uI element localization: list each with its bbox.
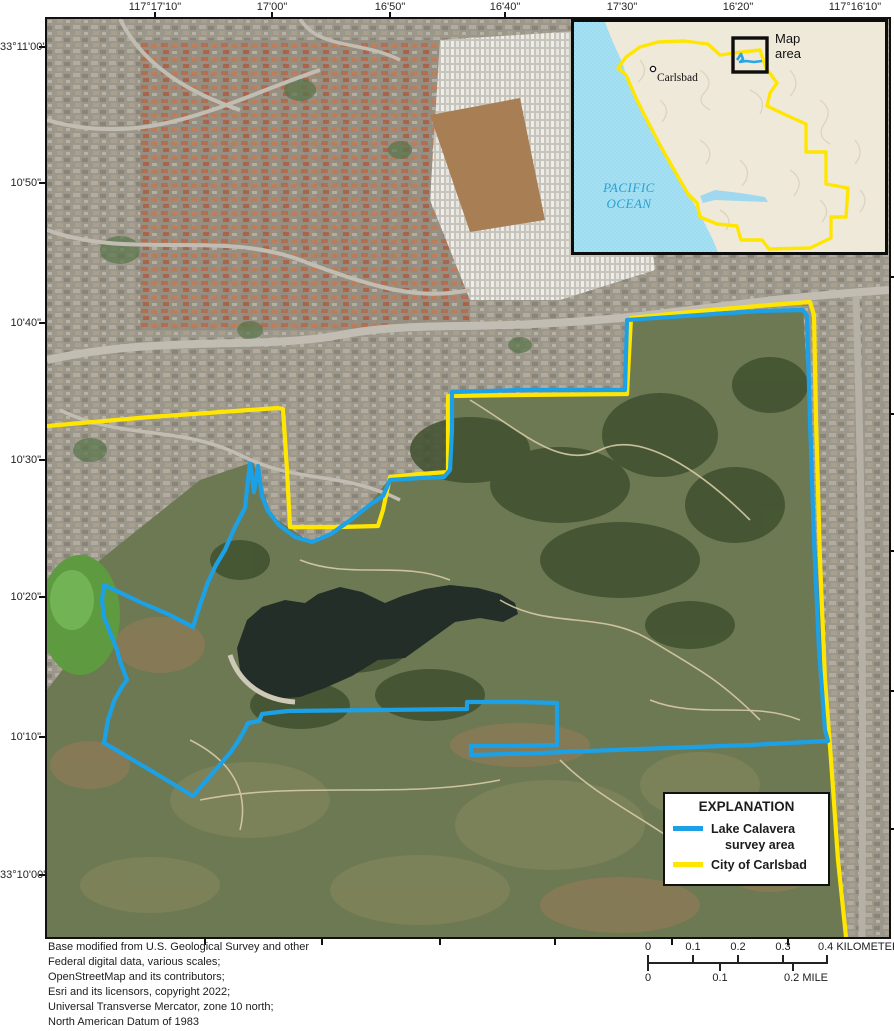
graticule-tick	[321, 939, 323, 945]
scale-km-end-label: 0.4 KILOMETER	[818, 941, 894, 953]
latitude-label: 10'20"	[0, 591, 41, 603]
carlsbad-town-marker	[650, 66, 655, 71]
graticule-tick	[889, 413, 894, 415]
scale-tick	[647, 955, 649, 963]
credit-line: OpenStreetMap and its contributors;	[48, 970, 309, 985]
latitude-label: 33°10'00"	[0, 869, 41, 881]
base-credit-note: Base modified from U.S. Geological Surve…	[48, 940, 309, 1030]
latitude-label: 33°11'00"	[0, 41, 41, 53]
graticule-tick	[889, 550, 894, 552]
scale-km-label: 0.2	[730, 941, 745, 953]
scale-mile-label: 0.1	[712, 972, 727, 984]
scale-mile-label: 0	[645, 972, 651, 984]
scale-tick	[737, 955, 739, 963]
scale-tick	[826, 955, 828, 963]
graticule-tick	[671, 939, 673, 945]
legend-item-city-boundary: City of Carlsbad	[665, 857, 828, 877]
carlsbad-label: Carlsbad	[657, 72, 698, 84]
scale-mile-end-label: 0.2 MILE	[784, 972, 828, 984]
longitude-label: 17'30"	[607, 1, 637, 13]
location-inset-map: Map area Carlsbad PACIFIC OCEAN	[571, 19, 888, 255]
graticule-tick	[889, 690, 894, 692]
scale-km-label: 0.1	[685, 941, 700, 953]
longitude-label: 16'20"	[723, 1, 753, 13]
legend-item-label: City of Carlsbad	[711, 857, 822, 873]
legend-item-label: Lake Calavera survey area	[711, 821, 822, 853]
scale-tick	[792, 963, 794, 971]
map-area-label: Map area	[775, 31, 813, 61]
latitude-label: 10'40"	[0, 317, 41, 329]
inset-map-graphics	[574, 22, 885, 252]
scale-tick	[782, 955, 784, 963]
graticule-tick	[889, 276, 894, 278]
scale-km-label: 0	[645, 941, 651, 953]
scale-km-label: 0.3	[775, 941, 790, 953]
longitude-label: 117°16'10"	[829, 1, 881, 13]
longitude-label: 117°17'10"	[129, 1, 181, 13]
longitude-label: 16'50"	[375, 1, 405, 13]
longitude-label: 17'00"	[257, 1, 287, 13]
scale-tick	[719, 963, 721, 971]
graticule-tick	[889, 828, 894, 830]
credit-line: Base modified from U.S. Geological Surve…	[48, 940, 309, 955]
credit-line: Federal digital data, various scales;	[48, 955, 309, 970]
figure: 117°17'10" 17'00" 16'50" 16'40" 17'30" 1…	[0, 0, 894, 1031]
longitude-label: 16'40"	[490, 1, 520, 13]
scale-tick	[647, 963, 649, 971]
latitude-label: 10'30"	[0, 454, 41, 466]
pacific-ocean-label: PACIFIC OCEAN	[592, 180, 666, 212]
survey-area-line-swatch	[673, 826, 703, 831]
scale-tick	[692, 955, 694, 963]
latitude-label: 10'50"	[0, 177, 41, 189]
credit-line: Esri and its licensors, copyright 2022;	[48, 985, 309, 1000]
city-boundary-line-swatch	[673, 862, 703, 867]
legend-box: EXPLANATION Lake Calavera survey area Ci…	[663, 792, 830, 886]
graticule-tick	[439, 939, 441, 945]
graticule-tick	[554, 939, 556, 945]
latitude-label: 10'10"	[0, 731, 41, 743]
credit-line: Universal Transverse Mercator, zone 10 n…	[48, 1000, 309, 1015]
credit-line: North American Datum of 1983	[48, 1015, 309, 1030]
legend-item-survey-area: Lake Calavera survey area	[665, 821, 828, 857]
legend-title: EXPLANATION	[665, 799, 828, 814]
